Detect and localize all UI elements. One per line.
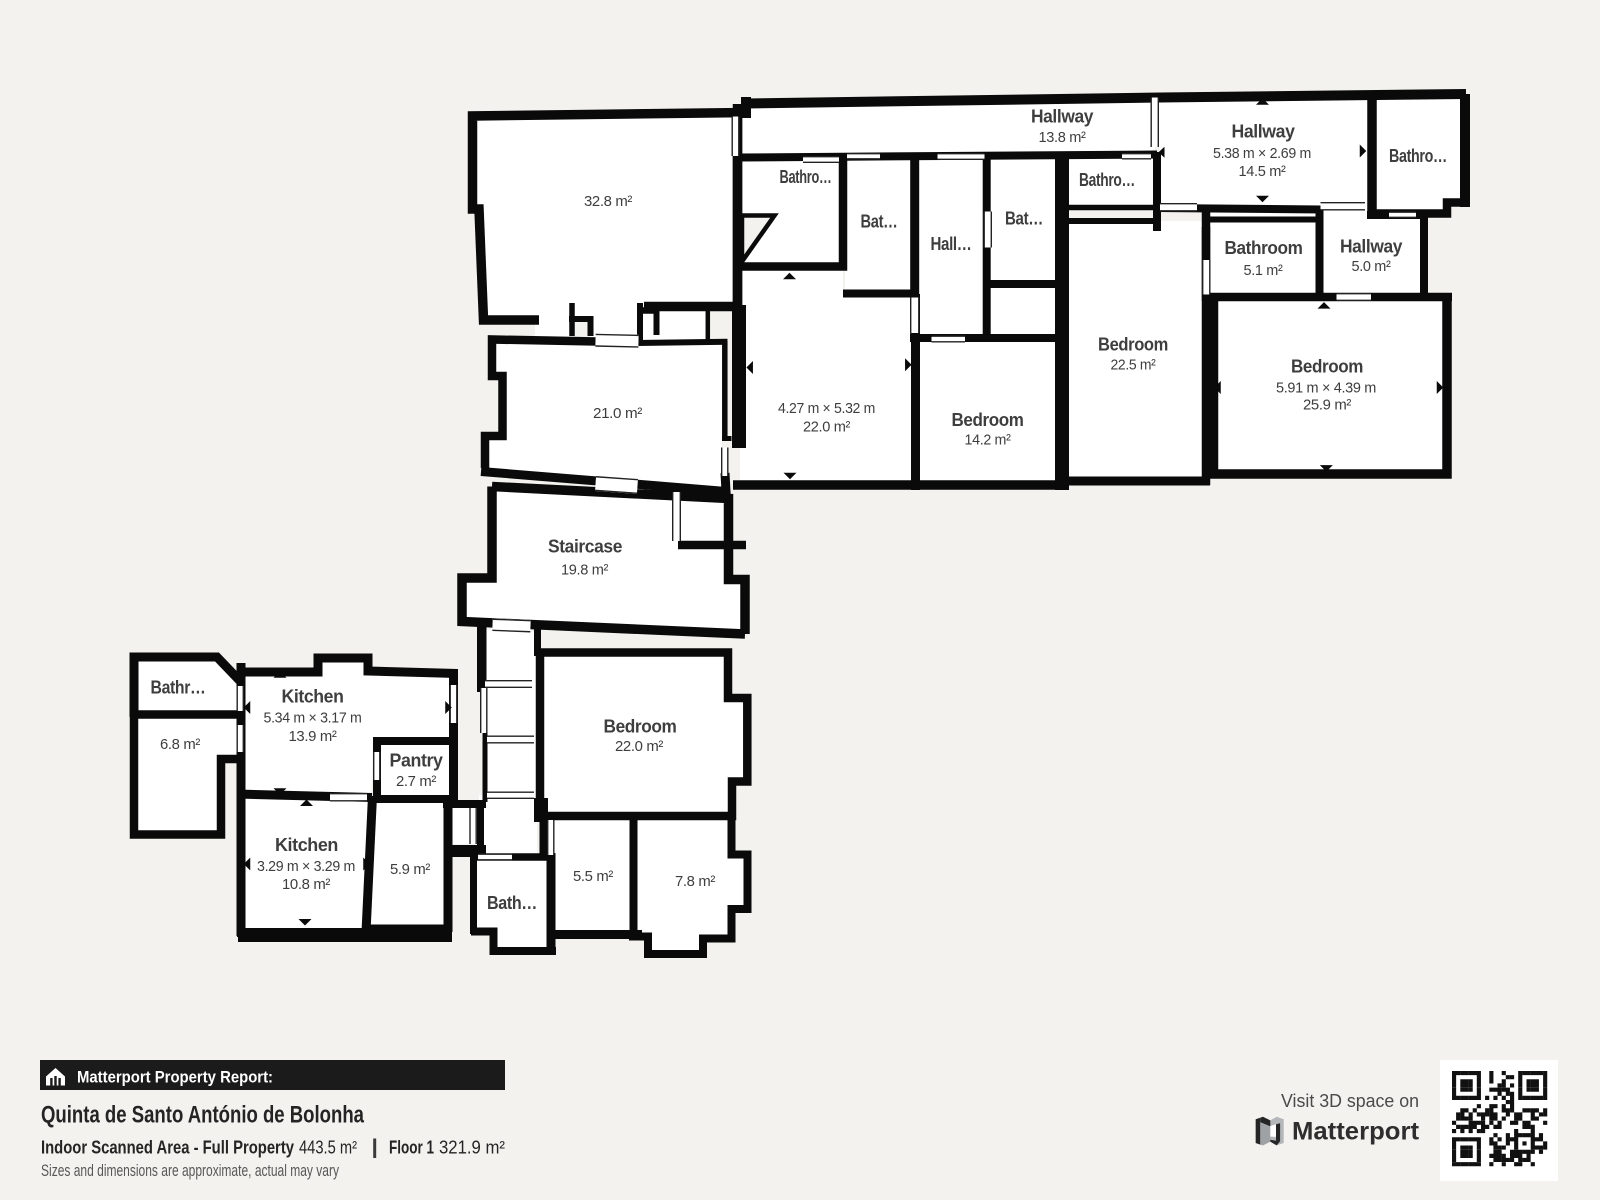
svg-text:3.29 m × 3.29 m: 3.29 m × 3.29 m <box>257 858 355 875</box>
svg-text:Bathr…: Bathr… <box>151 678 206 698</box>
svg-text:14.2 m²: 14.2 m² <box>965 432 1011 449</box>
svg-text:25.9 m²: 25.9 m² <box>1303 397 1351 414</box>
svg-text:13.8 m²: 13.8 m² <box>1039 129 1086 146</box>
svg-text:19.8 m²: 19.8 m² <box>561 562 608 579</box>
svg-text:5.38 m × 2.69 m: 5.38 m × 2.69 m <box>1213 145 1311 162</box>
svg-text:5.1 m²: 5.1 m² <box>1244 262 1283 279</box>
svg-text:22.0 m²: 22.0 m² <box>615 738 663 755</box>
svg-text:21.0 m²: 21.0 m² <box>593 405 642 422</box>
svg-text:2.7 m²: 2.7 m² <box>396 773 436 790</box>
svg-text:Hallway: Hallway <box>1232 122 1295 142</box>
svg-text:Hallway: Hallway <box>1031 107 1093 127</box>
svg-text:Bathroom: Bathroom <box>1225 238 1303 258</box>
svg-text:Bedroom: Bedroom <box>1098 335 1168 355</box>
svg-text:5.5 m²: 5.5 m² <box>573 868 613 885</box>
svg-text:5.34 m × 3.17 m: 5.34 m × 3.17 m <box>264 710 362 727</box>
svg-text:Bat…: Bat… <box>861 212 898 232</box>
svg-text:Sizes and dimensions are appro: Sizes and dimensions are approximate, ac… <box>41 1162 340 1180</box>
svg-text:Kitchen: Kitchen <box>282 687 344 707</box>
svg-text:Hall…: Hall… <box>931 234 972 254</box>
svg-text:6.8 m²: 6.8 m² <box>160 736 200 753</box>
svg-text:32.8 m²: 32.8 m² <box>584 193 632 210</box>
svg-text:5.0 m²: 5.0 m² <box>1352 258 1391 275</box>
svg-text:Matterport Property Report:: Matterport Property Report: <box>77 1068 273 1087</box>
svg-text:22.5 m²: 22.5 m² <box>1111 357 1156 374</box>
svg-text:Bedroom: Bedroom <box>1291 357 1363 377</box>
svg-text:Bathro…: Bathro… <box>1079 170 1135 190</box>
svg-text:Bedroom: Bedroom <box>604 717 677 737</box>
svg-text:Bat…: Bat… <box>1005 209 1043 229</box>
svg-text:Quinta de Santo António de Bol: Quinta de Santo António de Bolonha <box>41 1102 364 1129</box>
svg-text:Bedroom: Bedroom <box>952 410 1024 430</box>
svg-text:Bath…: Bath… <box>487 893 537 913</box>
svg-text:Staircase: Staircase <box>548 537 622 557</box>
svg-text:4.27 m × 5.32 m: 4.27 m × 5.32 m <box>778 400 875 417</box>
svg-text:10.8 m²: 10.8 m² <box>282 876 330 893</box>
svg-text:Hallway: Hallway <box>1340 237 1402 257</box>
svg-text:14.5 m²: 14.5 m² <box>1239 163 1286 180</box>
svg-text:Pantry: Pantry <box>390 751 443 771</box>
svg-text:5.91 m × 4.39 m: 5.91 m × 4.39 m <box>1276 380 1376 397</box>
svg-text:Bathro…: Bathro… <box>780 167 832 187</box>
svg-text:Kitchen: Kitchen <box>275 835 338 855</box>
svg-text:22.0 m²: 22.0 m² <box>803 419 850 436</box>
svg-text:Indoor Scanned Area - Full Pro: Indoor Scanned Area - Full Property443.5… <box>41 1138 357 1158</box>
svg-text:7.8 m²: 7.8 m² <box>675 873 715 890</box>
svg-text:5.9 m²: 5.9 m² <box>390 861 430 878</box>
svg-text:Bathro…: Bathro… <box>1389 146 1447 166</box>
svg-text:Visit 3D space on: Visit 3D space on <box>1281 1090 1419 1111</box>
svg-text:13.9 m²: 13.9 m² <box>289 728 337 745</box>
svg-text:Matterport: Matterport <box>1292 1118 1420 1146</box>
svg-text:Floor 1321.9 m²: Floor 1321.9 m² <box>389 1138 505 1158</box>
